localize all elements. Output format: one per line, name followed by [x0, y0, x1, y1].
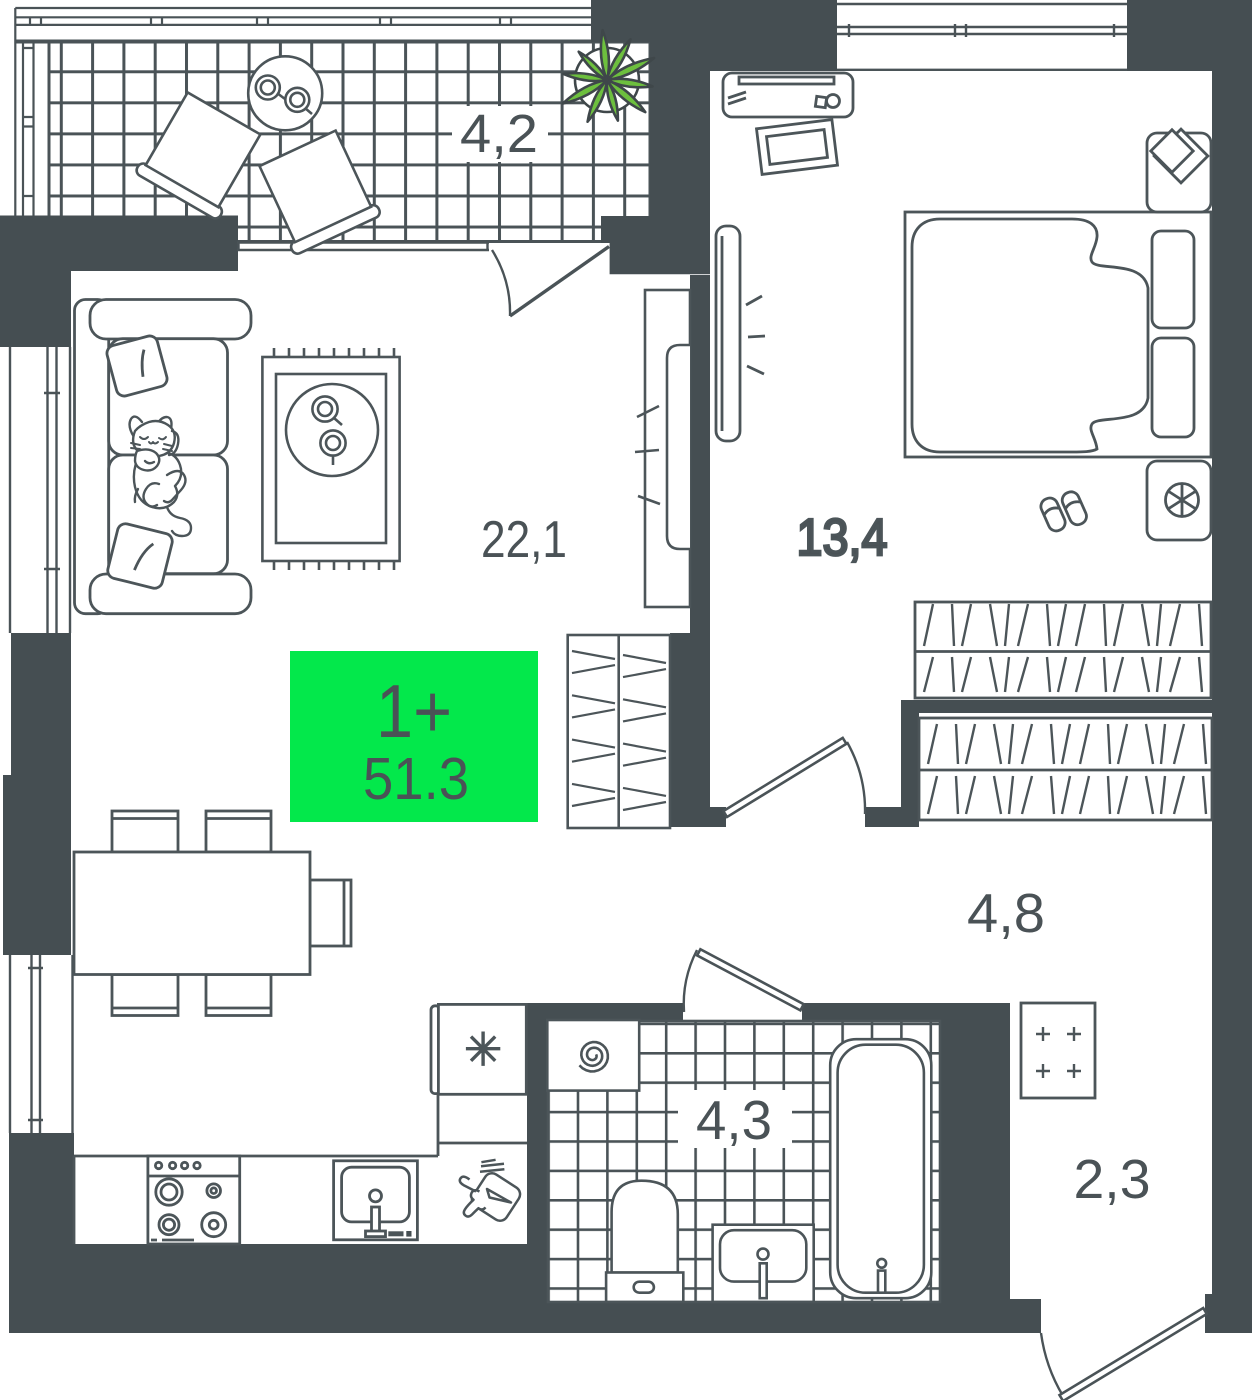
svg-text:4,2: 4,2: [460, 104, 538, 164]
svg-text:1+: 1+: [376, 669, 452, 753]
svg-text:4,3: 4,3: [696, 1089, 772, 1151]
svg-text:51.3: 51.3: [363, 746, 469, 812]
svg-text:22,1: 22,1: [481, 511, 567, 569]
svg-text:4,8: 4,8: [967, 882, 1045, 944]
svg-text:13,4: 13,4: [797, 509, 888, 567]
svg-text:2,3: 2,3: [1074, 1148, 1151, 1210]
